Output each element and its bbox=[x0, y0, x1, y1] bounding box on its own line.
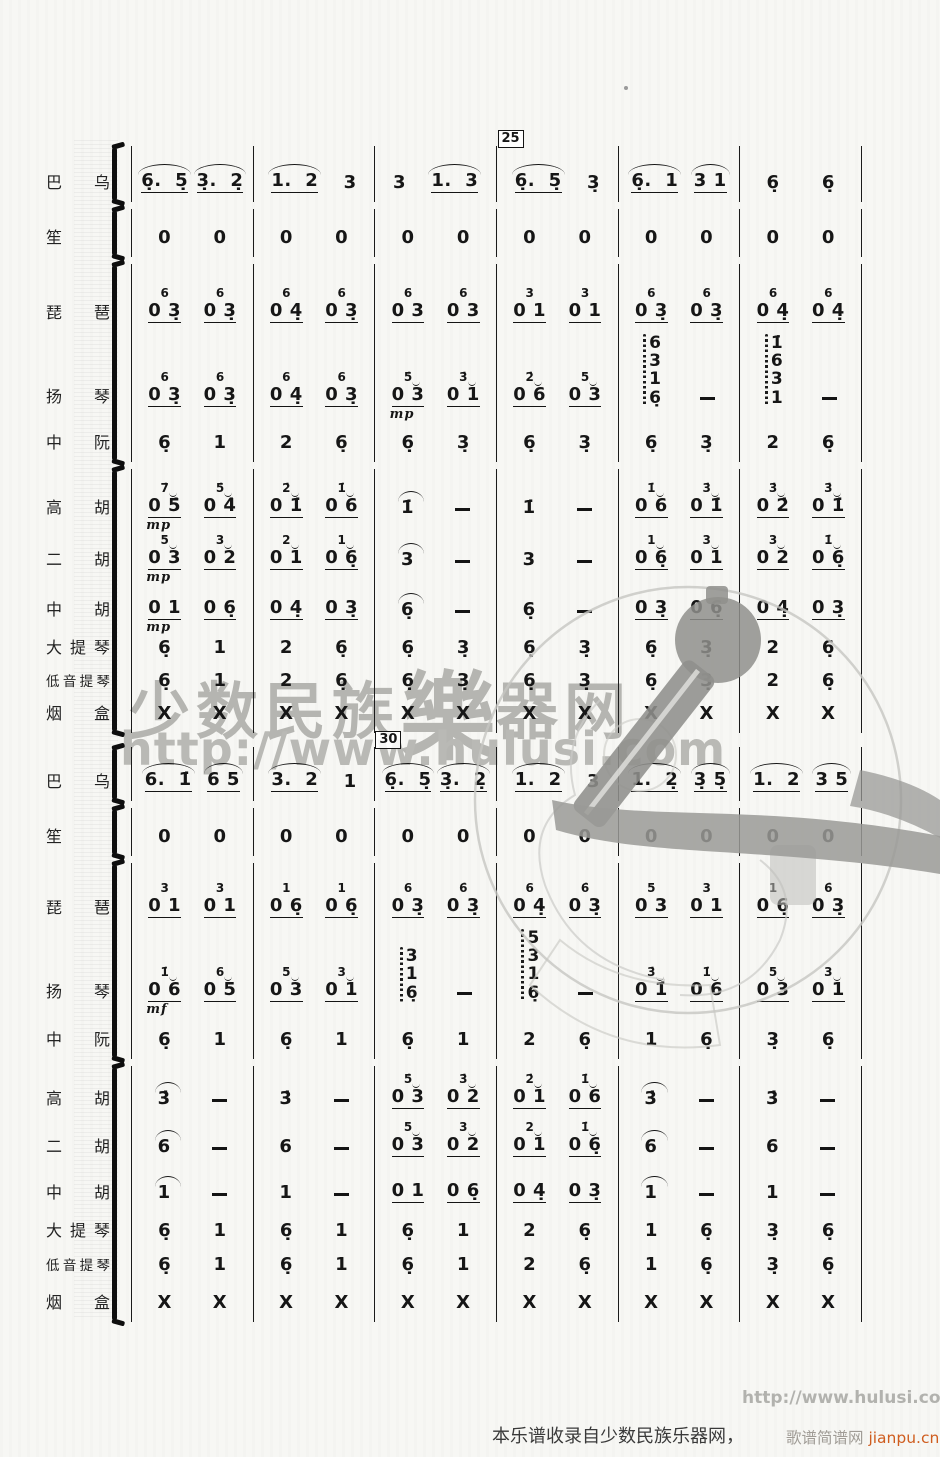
note-text: 0 2 bbox=[204, 548, 237, 570]
note-text: 0 1 bbox=[204, 896, 237, 918]
note-beat: 6̣ bbox=[335, 433, 348, 453]
note-beat: X bbox=[644, 704, 658, 724]
note-text: X bbox=[213, 704, 227, 724]
note-text: 0 3 bbox=[392, 1087, 425, 1109]
note-text: 0 6̣ bbox=[204, 598, 237, 620]
harmony-note-above: 3̇ bbox=[769, 482, 777, 494]
note-beat: 0 4̣ bbox=[270, 598, 303, 620]
note-text: 1. 2 bbox=[271, 171, 318, 193]
harmony-note-above: 6 bbox=[647, 287, 655, 299]
note-text: 0 3 bbox=[270, 980, 303, 1002]
harmony-note-above: 5 bbox=[160, 534, 168, 546]
instrument-row: 大提琴6̣126̣6̣3̣6̣3̣6̣3̣26̣ bbox=[44, 629, 862, 667]
note-beat: 3̣ bbox=[767, 1221, 780, 1241]
note-beat: 30 2 bbox=[204, 534, 237, 570]
note-text: 0 3̣ bbox=[325, 301, 358, 323]
note-beat: 6̣ bbox=[401, 600, 414, 620]
grace-tie-curve bbox=[169, 974, 177, 981]
measure: 1. 23 5 bbox=[739, 747, 862, 801]
note-beat: 1. 2 bbox=[753, 770, 800, 792]
note-beat: 0 bbox=[213, 228, 226, 248]
measure: 5316̣ bbox=[496, 927, 618, 1011]
note-beat: 30 1 bbox=[690, 534, 723, 570]
note-text: 3̣. 2̣ bbox=[197, 171, 244, 193]
harmony-note-above: 3 bbox=[160, 882, 168, 894]
note-text: X bbox=[157, 704, 171, 724]
note-beat: 6̣. 5̣ bbox=[385, 770, 432, 792]
note-text: 6̣ bbox=[645, 671, 658, 691]
measure: 60 3̣60 3̣ bbox=[131, 264, 253, 332]
note-beat: 1 bbox=[457, 1221, 470, 1241]
note-text: 0 bbox=[822, 827, 835, 847]
note-beat: 6̣ bbox=[645, 671, 658, 691]
note-beat: X bbox=[334, 1293, 348, 1313]
note-text: 0 1 bbox=[148, 896, 181, 918]
note-beat: 0 bbox=[700, 228, 713, 248]
note-beat bbox=[334, 1099, 349, 1109]
note-beat: X bbox=[157, 704, 171, 724]
note-beat: 60 3̣ bbox=[148, 287, 181, 323]
note-text: 0 5 bbox=[204, 980, 237, 1002]
note-beat: 6̣ bbox=[645, 433, 658, 453]
note-beat: 6̣ bbox=[158, 1255, 171, 1275]
note-text: X bbox=[401, 1293, 415, 1313]
note-text: 0 1 bbox=[690, 896, 723, 918]
note-beat: 60 3̣ bbox=[690, 287, 723, 323]
note-beat: 2̇0 1̇ bbox=[270, 482, 303, 518]
measure: 3̇0 2̇3̇0 1̇ bbox=[739, 469, 862, 527]
note-beat: 60 5 bbox=[204, 966, 237, 1002]
note-text: 3 bbox=[401, 550, 414, 570]
measures: 6. 1̇6 53. 216̣. 5̣3̣. 2̣1. 231. 2̣3̣ 5̣… bbox=[131, 747, 862, 801]
note-text: 3̣ bbox=[578, 638, 591, 658]
note-text: 0 1 bbox=[513, 301, 546, 323]
note-text: 0 3 bbox=[447, 301, 480, 323]
note-beat: 30 1 bbox=[569, 287, 602, 323]
instrument-row: 低音提琴6̣126̣6̣3̣6̣3̣6̣3̣26̣ bbox=[44, 667, 862, 700]
measure: 10 6̣30 1 bbox=[618, 527, 740, 579]
note-text: 3̣ bbox=[700, 433, 713, 453]
measure: 6̣3̣ bbox=[374, 416, 496, 462]
measure: 1. 2̣3̣ 5̣ bbox=[618, 747, 740, 801]
note-beat: 0 bbox=[158, 228, 171, 248]
measure: 60 4̣6̇0 3̣ bbox=[496, 863, 618, 927]
note-text: 1 bbox=[213, 1255, 226, 1275]
note-beat: 2 bbox=[280, 433, 293, 453]
note-beat: 1̇ bbox=[523, 498, 536, 518]
note-beat: 6316̣ bbox=[643, 334, 661, 407]
measure: 16̣ bbox=[618, 1212, 740, 1250]
note-text: 0 bbox=[700, 827, 713, 847]
measure: 26̣ bbox=[253, 629, 375, 667]
note-text: 0 1 bbox=[812, 980, 845, 1002]
note-beat: 2̇0 6 bbox=[513, 371, 546, 407]
note-beat: 3̣ bbox=[578, 433, 591, 453]
note-beat: 2 bbox=[280, 638, 293, 658]
note-text: 1 bbox=[213, 638, 226, 658]
group-bracket bbox=[112, 266, 117, 460]
note-beat: 1̇ bbox=[401, 498, 414, 518]
note-beat: 20 1 bbox=[270, 534, 303, 570]
note-text: 0 4̣ bbox=[513, 1181, 546, 1203]
note-beat: 3̇0 2 bbox=[447, 1073, 480, 1109]
measure: XX bbox=[374, 700, 496, 733]
note-beat bbox=[334, 1147, 349, 1157]
measure: 16̣ bbox=[618, 1250, 740, 1284]
measures: 6̣16̣16̣126̣16̣3̣6̣ bbox=[131, 1250, 862, 1284]
note-text: 0 6 bbox=[690, 980, 723, 1002]
measures: 3̇3̇5̇0 33̇0 22̇0 11̇0 63̇3̇ bbox=[131, 1066, 862, 1118]
note-text: 6̣ bbox=[401, 638, 414, 658]
note-text: 6̣ bbox=[700, 1030, 713, 1050]
harmony-note-above: 6 bbox=[216, 966, 224, 978]
note-text: 1 bbox=[344, 772, 357, 792]
footer-site-url: http://www.hulusi.com bbox=[742, 1388, 940, 1408]
held-note-dash bbox=[700, 397, 715, 400]
instrument-row: 巴乌6̣. 5̣3̣. 2̣1. 2331. 36̣. 5̣3̣6̣. 13 1… bbox=[44, 146, 862, 202]
measure: 7̇0 5̇mp5̇0 4̇ bbox=[131, 469, 253, 527]
note-beat: 50 3mp bbox=[148, 534, 181, 570]
measure: 5̇0 33̇0 2 bbox=[374, 1066, 496, 1118]
harmony-note-above: 3 bbox=[703, 534, 711, 546]
instrument-row: 烟盒XXXXXXXXXXXX bbox=[44, 1284, 862, 1322]
note-text: 3̣ bbox=[457, 671, 470, 691]
measures: XXXXXXXXXXXX bbox=[131, 1284, 862, 1322]
grace-tie-curve bbox=[833, 490, 841, 497]
note-text: 6̣ bbox=[401, 433, 414, 453]
grace-tie-curve bbox=[346, 542, 354, 549]
note-text: X bbox=[578, 1293, 592, 1313]
note-text: 0 3̣ bbox=[148, 301, 181, 323]
held-note-dash bbox=[455, 610, 470, 613]
measure: 60 360 3 bbox=[374, 264, 496, 332]
note-text: 0 bbox=[578, 827, 591, 847]
note-text: 6̣ bbox=[280, 1030, 293, 1050]
measures: 0 1mp0 6̣0 4̣0 3̣6̣6̣0 3̣0 6̣0 4̣0 3̣ bbox=[131, 579, 862, 629]
instrument-row: 扬琴60 3̣60 3̣60 4̣60 3̣5̇0 3mp3̇0 12̇0 65… bbox=[44, 332, 862, 416]
note-beat: 3̣ bbox=[700, 433, 713, 453]
note-beat bbox=[212, 1147, 227, 1157]
harmony-note-above: 6 bbox=[216, 371, 224, 383]
note-text: 3̣ bbox=[767, 1255, 780, 1275]
instrument-label: 中阮 bbox=[44, 1031, 110, 1059]
note-text: 0 6 bbox=[513, 385, 546, 407]
held-note-dash bbox=[699, 1147, 714, 1150]
note-beat: 50 3 bbox=[270, 966, 303, 1002]
measure: 6 bbox=[739, 1118, 862, 1166]
harmony-note-above: 5̇ bbox=[404, 371, 412, 383]
harmony-note-above: 2 bbox=[526, 1121, 534, 1133]
note-beat bbox=[820, 1147, 835, 1157]
note-beat: 6̣ bbox=[700, 1255, 713, 1275]
note-text: 3̣ bbox=[767, 1221, 780, 1241]
measure: 1. 23 bbox=[496, 747, 618, 801]
note-text: 6̣ bbox=[401, 600, 414, 620]
note-text: 0 3̣ bbox=[325, 598, 358, 620]
note-beat: X bbox=[578, 704, 592, 724]
note-text: 0 6̣ bbox=[325, 896, 358, 918]
note-beat: 3 1 bbox=[694, 171, 727, 193]
note-text: 1. 3 bbox=[431, 171, 478, 193]
note-beat: 10 6̣ bbox=[635, 534, 668, 570]
note-beat: X bbox=[522, 704, 536, 724]
measure: 1̇ bbox=[496, 469, 618, 527]
held-note-dash bbox=[577, 560, 592, 563]
note-beat: 60 3̣ bbox=[204, 287, 237, 323]
note-text: 6̣ bbox=[822, 671, 835, 691]
note-beat: 6̣ bbox=[158, 433, 171, 453]
note-text: 0 6 bbox=[569, 1087, 602, 1109]
measure: XX bbox=[253, 700, 375, 733]
grace-tie-curve bbox=[534, 1081, 542, 1088]
measure: 0 10 6̣ bbox=[374, 1166, 496, 1212]
measure: 6 bbox=[253, 1118, 375, 1166]
harmony-note-above: 1 bbox=[647, 534, 655, 546]
note-beat: 5̇0 3mp bbox=[392, 371, 425, 407]
note-text: 0 bbox=[401, 827, 414, 847]
instrument-label: 扬琴 bbox=[44, 388, 110, 416]
measure: 0 4̣0 3̣ bbox=[253, 579, 375, 629]
note-beat: 30 1 bbox=[513, 287, 546, 323]
group-bracket bbox=[112, 810, 117, 854]
note-beat: 3̣ bbox=[700, 638, 713, 658]
note-beat: 6̣ bbox=[335, 671, 348, 691]
note-beat: 1̇0 6 bbox=[325, 482, 358, 518]
note-beat: 1. 2 bbox=[515, 770, 562, 792]
note-beat: 30 2 bbox=[757, 534, 790, 570]
note-beat: 60 4̣ bbox=[513, 882, 546, 918]
harmony-note-above: 2 bbox=[282, 534, 290, 546]
arpeggio-squiggle bbox=[400, 947, 403, 1002]
measure: 6̣3̣ bbox=[618, 629, 740, 667]
note-beat: 6 5 bbox=[207, 770, 240, 792]
measure: 00 bbox=[496, 209, 618, 257]
grace-tie-curve bbox=[169, 542, 177, 549]
measure: XX bbox=[618, 1284, 740, 1322]
note-text: 6̣ bbox=[523, 600, 536, 620]
measure: 00 bbox=[618, 209, 740, 257]
measure: 50 3mp30 2 bbox=[131, 527, 253, 579]
note-beat: 50 3 bbox=[635, 882, 668, 918]
note-text: 6̣ bbox=[767, 173, 780, 193]
measure: XX bbox=[374, 1284, 496, 1322]
note-beat: 6̣ bbox=[822, 433, 835, 453]
instrument-row: 烟盒XXXXXXXXXXXX bbox=[44, 700, 862, 733]
note-beat: 0 bbox=[401, 228, 414, 248]
grace-tie-curve bbox=[833, 542, 841, 549]
harmony-note-above: 3̇ bbox=[647, 966, 655, 978]
sheet-music-page: 少数民族樂器网 http://www.hulusi.com 25巴乌6̣. 5̣… bbox=[0, 0, 940, 1457]
measure: 50 330 1 bbox=[739, 927, 862, 1011]
note-beat: 3̇0 1̇ bbox=[812, 482, 845, 518]
note-text: 0 3 bbox=[148, 548, 181, 570]
instrument-group: 琵琶30 130 110 6̣10 6̣60 3̣6̇0 3̣60 4̣6̇0 … bbox=[44, 863, 862, 1059]
note-text: X bbox=[699, 704, 713, 724]
note-text: 0 bbox=[158, 228, 171, 248]
held-note-dash bbox=[212, 1099, 227, 1102]
instrument-label: 高胡 bbox=[44, 499, 110, 527]
held-note-dash bbox=[699, 1099, 714, 1102]
note-beat bbox=[699, 1147, 714, 1157]
note-text: X bbox=[766, 1293, 780, 1313]
note-beat: 6̣ bbox=[822, 1030, 835, 1050]
grace-tie-curve bbox=[468, 379, 476, 386]
note-text: 0 4̣ bbox=[812, 301, 845, 323]
footer-credit-text: 本乐谱收录自少数民族乐器网，由书 bbox=[492, 1422, 738, 1448]
note-beat: X bbox=[766, 704, 780, 724]
note-beat: 3. 2 bbox=[271, 770, 318, 792]
note-text: 6 bbox=[766, 1137, 779, 1157]
measure: 6̣1 bbox=[253, 1212, 375, 1250]
note-beat: X bbox=[456, 704, 470, 724]
note-text: X bbox=[456, 704, 470, 724]
note-beat bbox=[212, 1099, 227, 1109]
note-beat: 6̣ bbox=[158, 638, 171, 658]
note-beat bbox=[822, 397, 837, 407]
harmony-note-above: 3̇ bbox=[824, 482, 832, 494]
note-text: X bbox=[821, 1293, 835, 1313]
note-text: 3 bbox=[587, 772, 600, 792]
instrument-row: 琵琶60 3̣60 3̣60 4̣60 3̣60 360 330 130 160… bbox=[44, 264, 862, 332]
note-beat: X bbox=[699, 704, 713, 724]
note-beat: 60 3̣ bbox=[635, 287, 668, 323]
harmony-note-above: 3̇ bbox=[703, 482, 711, 494]
measure: 60 3̣6̇0 3̣ bbox=[374, 863, 496, 927]
measure: XX bbox=[618, 700, 740, 733]
note-text: 0 3̣ bbox=[635, 301, 668, 323]
note-text: 2 bbox=[280, 671, 293, 691]
note-beat: 60 3̣ bbox=[148, 371, 181, 407]
note-beat: X bbox=[334, 704, 348, 724]
arpeggio-chord: 6316̣ bbox=[643, 334, 661, 407]
note-beat: 6 bbox=[644, 1137, 657, 1157]
note-text: 0 3 bbox=[757, 980, 790, 1002]
measure: 3̇ bbox=[618, 1066, 740, 1118]
measures: 60 3̣60 3̣60 4̣60 3̣5̇0 3mp3̇0 12̇0 650 … bbox=[131, 332, 862, 416]
measure: 6̣1 bbox=[131, 1212, 253, 1250]
measure: XX bbox=[253, 1284, 375, 1322]
note-beat: 60 3̣ bbox=[325, 371, 358, 407]
note-beat: 6̣ bbox=[700, 1221, 713, 1241]
harmony-note-above: 3̇ bbox=[459, 371, 467, 383]
harmony-note-above: 1̇ bbox=[647, 482, 655, 494]
note-text: 0 2 bbox=[757, 548, 790, 570]
harmony-note-above: 6̇ bbox=[459, 882, 467, 894]
note-beat: 3̇0 2̇ bbox=[757, 482, 790, 518]
note-beat: 3̣. 2̣ bbox=[440, 770, 487, 792]
note-text: 0 6̣ bbox=[325, 548, 358, 570]
note-text: 6̣ bbox=[578, 1030, 591, 1050]
note-text: 3̣ 5̣ bbox=[694, 770, 727, 792]
instrument-row: 扬琴1̇0 6mf60 550 330 1316̣5316̣3̇0 1̇1̇0 … bbox=[44, 927, 862, 1011]
note-beat: 30 1 bbox=[148, 882, 181, 918]
group-bracket bbox=[112, 865, 117, 1057]
note-text: 1 bbox=[645, 1030, 658, 1050]
note-beat: 6̣ bbox=[822, 671, 835, 691]
note-beat: 0 bbox=[578, 228, 591, 248]
note-text: 0 bbox=[523, 827, 536, 847]
note-beat: 1 bbox=[645, 1221, 658, 1241]
note-beat: 1 bbox=[644, 1183, 657, 1203]
note-beat: 0 bbox=[767, 827, 780, 847]
grace-tie-curve bbox=[291, 974, 299, 981]
note-beat: 6̣ bbox=[523, 433, 536, 453]
note-text: 6̣ bbox=[280, 1255, 293, 1275]
note-text: 6̣ bbox=[401, 671, 414, 691]
note-text: 2 bbox=[767, 638, 780, 658]
note-text: 0 bbox=[457, 827, 470, 847]
note-text: 6̣. 1 bbox=[631, 171, 678, 193]
note-beat: X bbox=[213, 704, 227, 724]
note-beat: 60 3 bbox=[392, 287, 425, 323]
note-beat: 3̇0 1̇ bbox=[690, 482, 723, 518]
instrument-label: 大提琴 bbox=[44, 1222, 110, 1250]
note-beat: 6̣ bbox=[280, 1221, 293, 1241]
measure: 16̣ bbox=[618, 1011, 740, 1059]
instrument-label: 烟盒 bbox=[44, 705, 110, 733]
measures: 6̣126̣6̣3̣6̣3̣6̣3̣26̣ bbox=[131, 629, 862, 667]
note-beat: 1 bbox=[213, 1255, 226, 1275]
instrument-label: 烟盒 bbox=[44, 1294, 110, 1322]
note-text: 3̣. 2̣ bbox=[440, 770, 487, 792]
measure: 50 330 2 bbox=[374, 1118, 496, 1166]
note-beat: 60 4̣ bbox=[812, 287, 845, 323]
note-beat: 60 3̣ bbox=[392, 882, 425, 918]
instrument-label: 巴乌 bbox=[44, 773, 110, 801]
measure: 1̇631 bbox=[739, 332, 862, 416]
grace-tie-curve bbox=[656, 490, 664, 497]
note-beat: 3 bbox=[344, 173, 357, 193]
harmony-note-above: 6 bbox=[526, 882, 534, 894]
note-beat: 0 bbox=[335, 827, 348, 847]
measure: 00 bbox=[374, 808, 496, 856]
note-beat: 3 bbox=[393, 173, 406, 193]
measure: 30 130 1 bbox=[131, 863, 253, 927]
note-beat: 3̣ bbox=[457, 638, 470, 658]
harmony-note-above: 1 bbox=[337, 882, 345, 894]
note-beat: 1 bbox=[645, 1255, 658, 1275]
instrument-row: 二胡6650 330 220 11̇0 6̣66 bbox=[44, 1118, 862, 1166]
note-beat: 1 bbox=[344, 772, 357, 792]
note-beat: 6̣. 5̣ bbox=[141, 171, 188, 193]
note-text: 6̣ bbox=[523, 433, 536, 453]
note-text: 0 1̇ bbox=[812, 496, 845, 518]
note-text: X bbox=[644, 1293, 658, 1313]
note-text: 6̣. 5̣ bbox=[515, 171, 562, 193]
note-beat: 316̣ bbox=[400, 947, 418, 1002]
measures: 000000000000 bbox=[131, 808, 862, 856]
instrument-label: 笙 bbox=[44, 229, 110, 257]
measure: 5̇0 3mp3̇0 1 bbox=[374, 332, 496, 416]
note-text: 6 bbox=[644, 1137, 657, 1157]
note-text: 6̣ bbox=[700, 1221, 713, 1241]
measure: 31. 3 bbox=[374, 146, 496, 202]
note-beat: 1. 2 bbox=[271, 171, 318, 193]
note-beat: 6̣ bbox=[578, 1255, 591, 1275]
instrument-label: 低音提琴 bbox=[44, 1259, 110, 1284]
note-beat: 3̣. 2̣ bbox=[197, 171, 244, 193]
measure: 6̣. 13 1 bbox=[618, 146, 740, 202]
measures: 6̣16̣16̣126̣16̣3̣6̣ bbox=[131, 1011, 862, 1059]
note-text: 6̣ bbox=[158, 671, 171, 691]
measures: 30 130 110 6̣10 6̣60 3̣6̇0 3̣60 4̣6̇0 3̣… bbox=[131, 863, 862, 927]
note-beat: 6̣ bbox=[401, 1255, 414, 1275]
note-beat: 6̣ bbox=[822, 1255, 835, 1275]
measure: 00 bbox=[618, 808, 740, 856]
note-beat: 3̇ bbox=[766, 1089, 779, 1109]
harmony-note-above: 6 bbox=[160, 287, 168, 299]
arpeggio-chord: 1̇631 bbox=[765, 334, 783, 407]
